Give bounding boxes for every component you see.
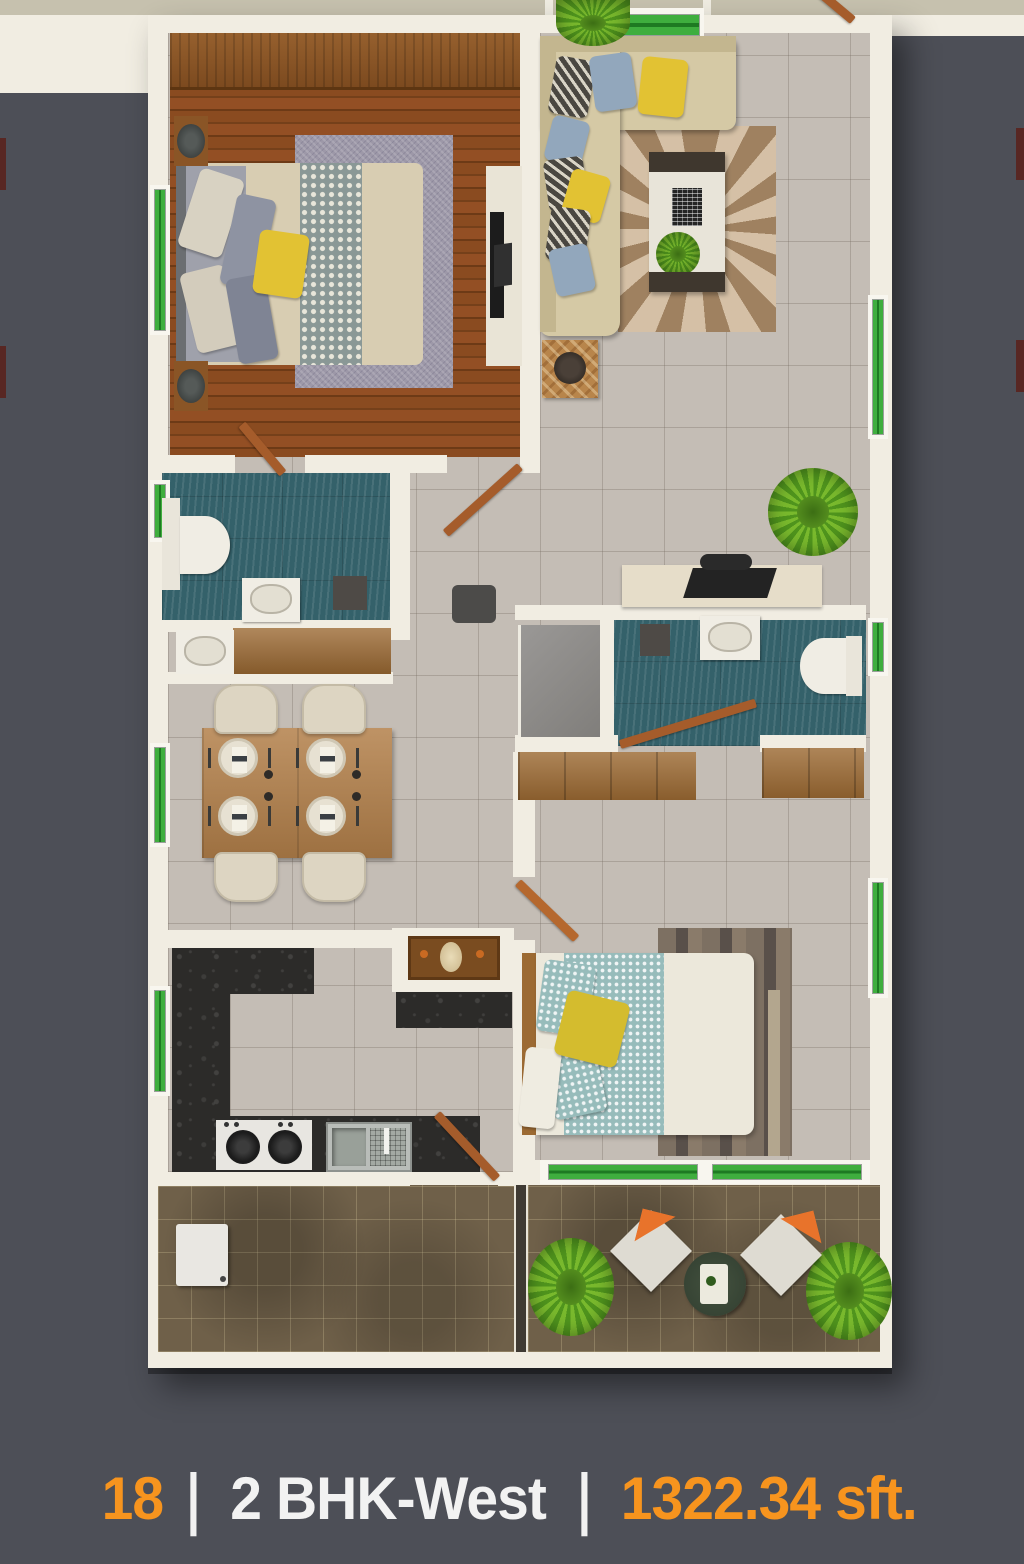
parapet-wall (148, 1352, 892, 1368)
cup (352, 792, 361, 801)
hall-stool (452, 585, 496, 623)
tray-item (706, 1276, 716, 1286)
wall-utility-north (498, 1172, 515, 1186)
toilet (800, 638, 848, 694)
gray-cabinet (518, 625, 600, 737)
corridor-jamb (703, 0, 711, 15)
hob-knob (278, 1122, 283, 1127)
table-books (672, 188, 702, 226)
pooja-lamp (420, 950, 428, 958)
pooja-counter (396, 992, 512, 1028)
unit-number: 18 (101, 1464, 163, 1533)
wall-bathroom2-west (600, 618, 614, 746)
tv-stand (494, 243, 512, 288)
cutlery (208, 806, 211, 826)
dining-chair (302, 852, 366, 902)
coffee-table-edge (649, 152, 725, 172)
shower-mat (640, 624, 670, 656)
toilet1-wall-unit (162, 498, 180, 590)
neighbor-window-sliver (1016, 128, 1024, 180)
side-table-bowl (554, 352, 586, 384)
cutlery (356, 806, 359, 826)
place-setting (306, 796, 346, 836)
wall-bathroom1-east (390, 473, 410, 640)
neighbor-window-sliver (0, 138, 6, 190)
corridor-plant (556, 0, 630, 46)
unit-area: 1322.34 sft. (621, 1464, 917, 1533)
desk-chair (700, 554, 752, 570)
floorplan-canvas: 18 | 2 BHK-West | 1322.34 sft. (0, 0, 1024, 1564)
caption-separator: | (577, 1459, 590, 1537)
hob-knob (288, 1122, 293, 1127)
place-setting (218, 796, 258, 836)
pillow-blue (588, 51, 637, 112)
neighbor-window-sliver (1016, 340, 1024, 392)
window-bathroom2 (868, 618, 888, 676)
cutlery (268, 748, 271, 768)
sink-faucet (384, 1128, 389, 1154)
toilet (180, 516, 230, 574)
bedroom2-rug-stripe (768, 990, 780, 1156)
balcony-divider (514, 1185, 528, 1352)
dining-chair (302, 684, 366, 734)
table-lamp (177, 369, 205, 403)
parapet-shadow (148, 1368, 892, 1374)
basin-bowl (250, 584, 292, 614)
unit-type: 2 BHK-West (231, 1464, 547, 1533)
bath-mat (333, 576, 367, 610)
neighbor-window-sliver (0, 346, 6, 398)
table-lamp (177, 124, 205, 158)
window-dining (150, 743, 170, 847)
basin-bowl (184, 636, 226, 666)
cutlery (356, 748, 359, 768)
cutlery (208, 748, 211, 768)
cup (264, 770, 273, 779)
master-wardrobe (170, 33, 522, 90)
master-bed-runner (300, 163, 362, 365)
cutlery (296, 806, 299, 826)
corridor-jamb (545, 0, 553, 15)
sliding-door-balcony (540, 1160, 870, 1184)
wall-bathroom2-south (515, 735, 618, 752)
window-master (150, 185, 170, 335)
hall-plant (768, 468, 858, 556)
hob-knob (234, 1122, 239, 1127)
wall-utility-north (148, 1172, 410, 1186)
place-setting (218, 738, 258, 778)
sink-basin (332, 1128, 366, 1166)
cup (264, 792, 273, 801)
pooja-deity (440, 942, 462, 972)
dining-chair (214, 852, 278, 902)
cutlery (268, 806, 271, 826)
wardrobe-unit (518, 752, 696, 800)
laptop (683, 568, 777, 598)
wall-bedroom-south (148, 455, 235, 473)
wall-bathroom2-north (515, 605, 866, 620)
balcony-plant (528, 1238, 614, 1336)
caption-separator: | (187, 1459, 200, 1537)
caption-bar: 18 | 2 BHK-West | 1322.34 sft. (0, 1438, 1024, 1558)
window-kitchen (150, 986, 170, 1096)
burner (226, 1130, 260, 1164)
burner (268, 1130, 302, 1164)
wall-bedroom-south (305, 455, 447, 473)
wardrobe-unit (762, 748, 864, 798)
pillow-yellow (252, 229, 310, 299)
toilet-tank (846, 636, 862, 696)
coffee-table-edge (649, 272, 725, 292)
master-headboard (176, 163, 186, 365)
dining-chair (214, 684, 278, 734)
vanity-counter (233, 628, 391, 674)
pooja-lamp (476, 950, 484, 958)
basin-bowl (708, 622, 752, 652)
neighbor-wall-left (0, 15, 150, 93)
washer-knob (220, 1276, 226, 1282)
hob-knob (224, 1122, 229, 1127)
table-plant (656, 232, 700, 276)
window-living (868, 295, 888, 439)
window-bedroom2 (868, 878, 888, 998)
cutlery (296, 748, 299, 768)
corridor-strip (0, 0, 1024, 15)
wall-bedroom-living (520, 15, 540, 473)
place-setting (306, 738, 346, 778)
pillow-yellow (637, 56, 689, 118)
cup (352, 770, 361, 779)
